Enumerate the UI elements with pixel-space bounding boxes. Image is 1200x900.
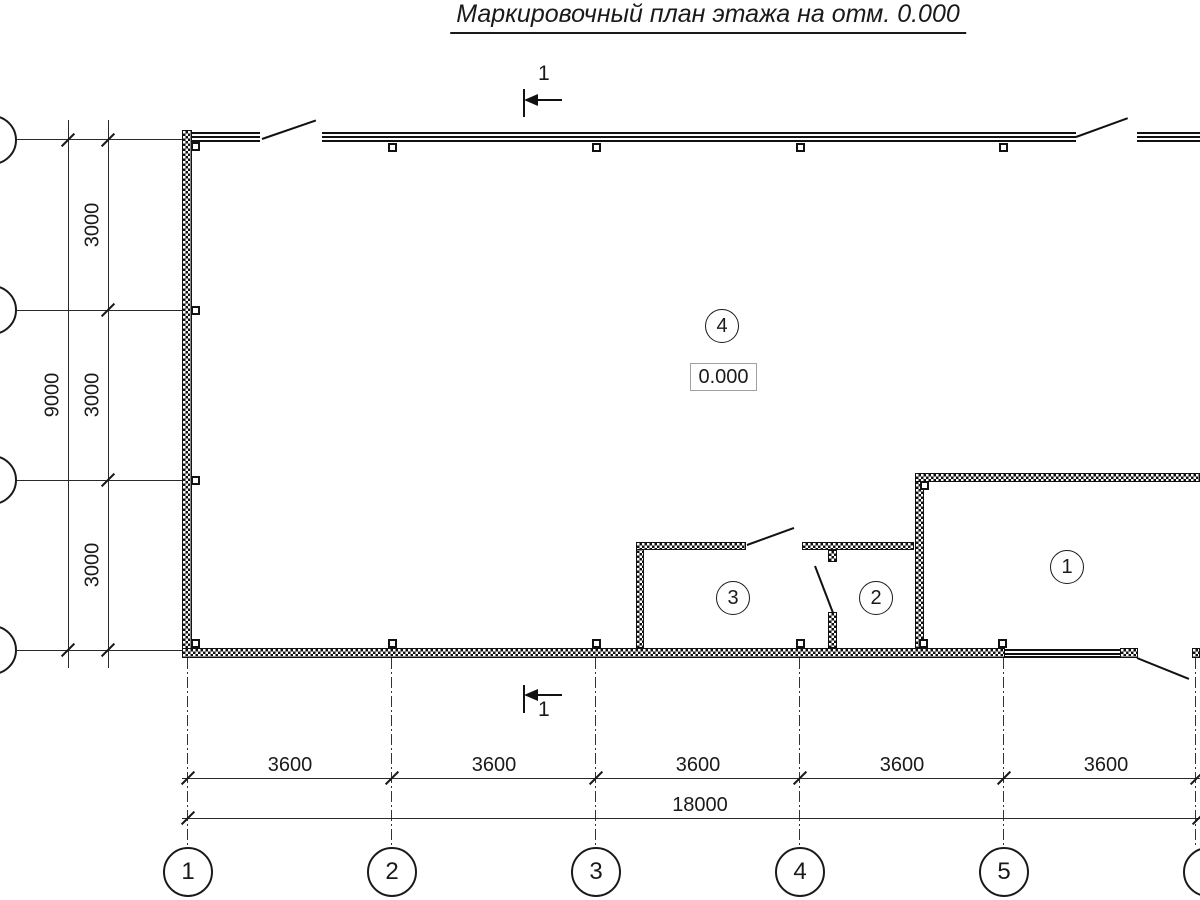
dimension-label: 3600 [268,754,313,777]
room3-wall-vertical [636,542,644,648]
exterior-wall-bottom-pier [1120,648,1138,658]
room-number: 4 [716,315,727,338]
axis-circle-column: 4 [775,847,825,897]
column-post [796,639,805,648]
axis-number: 1 [181,858,194,886]
axis-circle-column: 5 [979,847,1029,897]
room-number-circle: 2 [859,581,893,615]
section-arrow-icon [524,689,538,701]
dimension-label: 3000 [82,543,105,588]
section-mark-label: 1 [538,698,550,722]
dimension-line-left-total [68,120,69,668]
door-leaf-exit [1137,657,1190,680]
axis-number: 2 [385,858,398,886]
window-band-top [1137,132,1200,142]
dimension-label: 3000 [82,203,105,248]
section-arrow-icon [524,94,538,106]
dimension-label-total: 18000 [672,794,728,817]
axis-number: 4 [793,858,806,886]
axis-circle-column: 1 [163,847,213,897]
dimension-line-segments [182,778,1200,779]
axis-circle-row [0,115,17,165]
column-post [796,143,805,152]
column-post [592,143,601,152]
axis-circle-column: 2 [367,847,417,897]
room-number-circle: 4 [705,309,739,343]
room3-wall-horizontal [636,542,746,550]
axis-row-line [0,310,182,311]
room2-wall-horizontal [802,542,914,550]
axis-circle-row [0,625,17,675]
axis-circle-column: 6 [1183,847,1200,897]
column-post [919,639,928,648]
column-post [592,639,601,648]
elevation-mark: 0.000 [690,363,757,391]
room1-wall-vertical [915,473,924,648]
exterior-wall-bottom [182,648,1005,658]
exterior-wall-bottom-end [1192,648,1200,658]
axis-row-line [0,139,182,140]
page-title: Маркировочный план этажа на отм. 0.000 [450,0,966,34]
exterior-wall-left [182,130,192,658]
room2-door-jamb-bottom [828,612,837,648]
window-band-bottom [1005,649,1120,658]
axis-circle-column: 3 [571,847,621,897]
column-post [191,476,200,485]
dimension-label: 3000 [82,373,105,418]
dimension-label: 3600 [1084,754,1129,777]
dimension-line-left-segments [108,120,109,668]
dimension-label: 3600 [880,754,925,777]
axis-circle-row [0,455,17,505]
dimension-label: 3600 [472,754,517,777]
dimension-label: 3600 [676,754,721,777]
door-leaf-room3 [747,527,795,546]
column-post [999,143,1008,152]
room-number: 1 [1061,556,1072,579]
room-number: 2 [870,587,881,610]
window-band-top [322,132,1076,142]
elevation-value: 0.000 [698,366,748,389]
door-leaf-room2 [814,566,834,614]
axis-number: 5 [997,858,1010,886]
room-number-circle: 3 [716,581,750,615]
room-number: 3 [727,587,738,610]
window-band-top [192,132,260,142]
dimension-label-total: 9000 [42,373,65,418]
room-number-circle: 1 [1050,550,1084,584]
column-post [191,142,200,151]
axis-circle-row [0,285,17,335]
axis-number: 3 [589,858,602,886]
column-post [998,639,1007,648]
column-post [388,143,397,152]
door-leaf-top-right [1076,117,1128,138]
axis-row-line [0,650,182,651]
floor-plan-drawing: Маркировочный план этажа на отм. 0.000 [0,0,1200,900]
column-post [191,306,200,315]
column-post [920,481,929,490]
dimension-line-total [182,818,1200,819]
axis-row-line [0,480,182,481]
section-mark-label: 1 [538,62,550,86]
column-post [388,639,397,648]
door-leaf-top-left [262,119,317,139]
column-post [191,639,200,648]
room2-door-jamb-top [828,550,837,562]
room1-wall-horizontal [915,473,1200,482]
